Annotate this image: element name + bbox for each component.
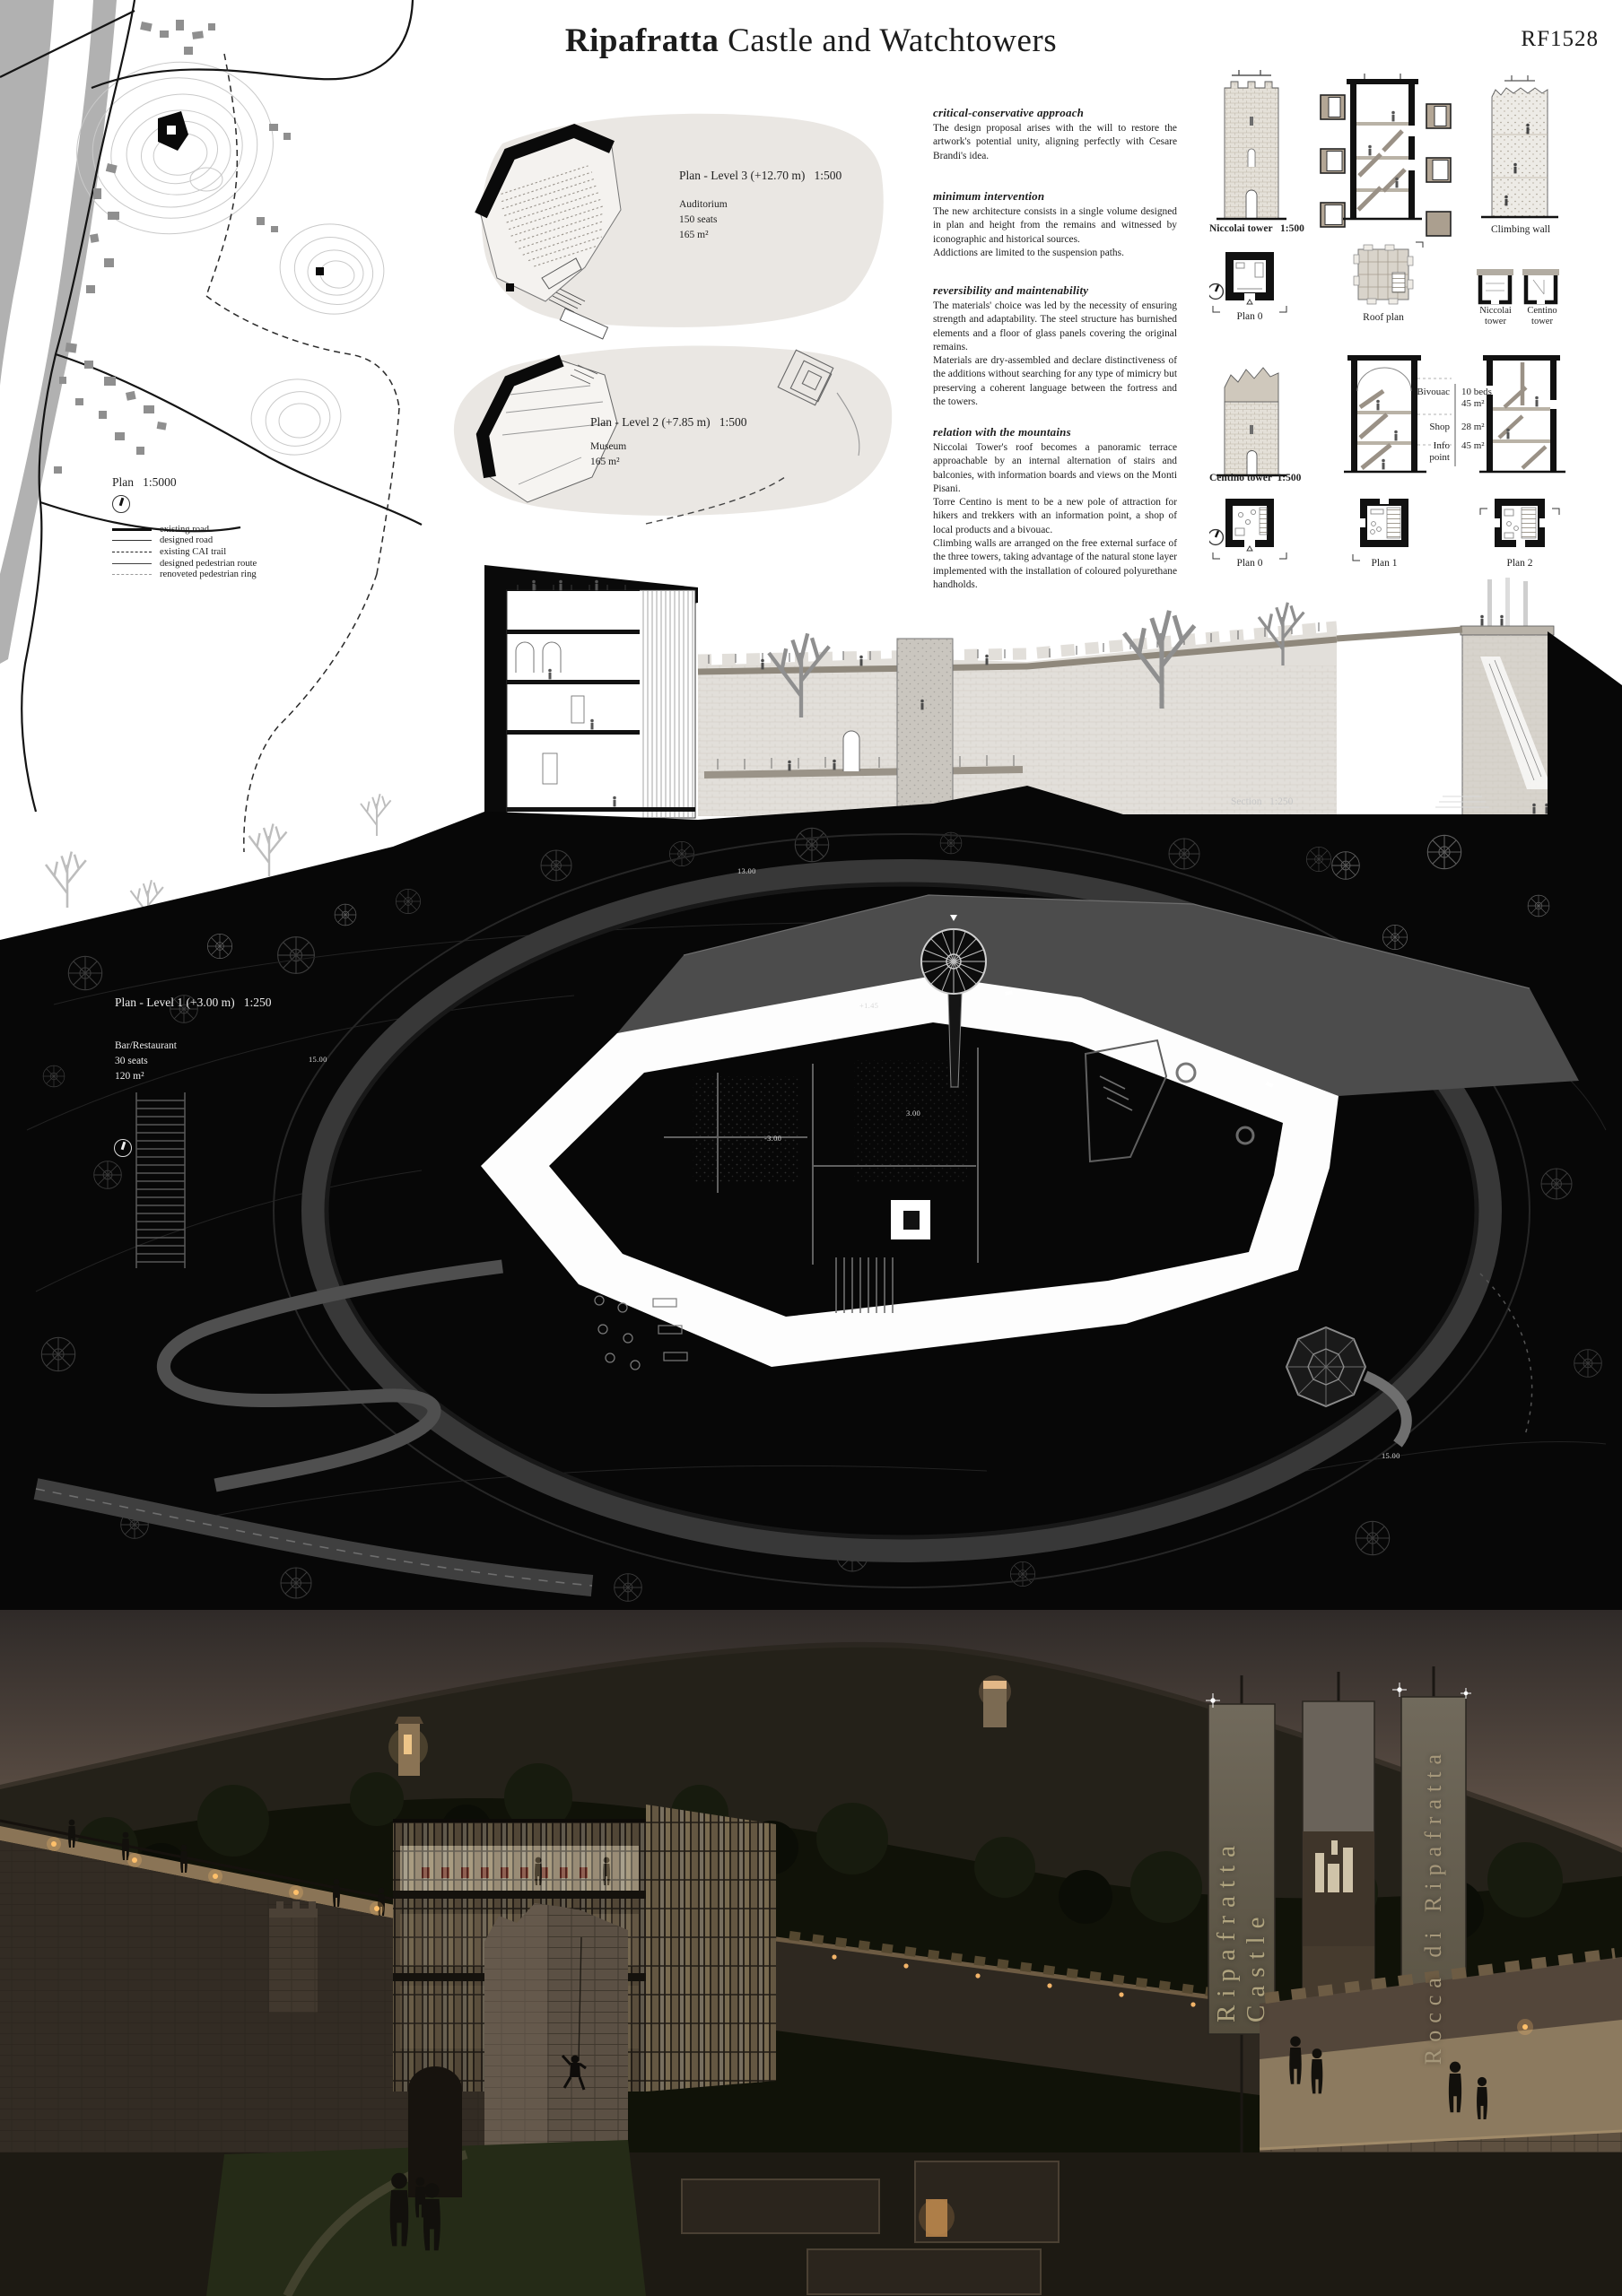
section-scale-label: Section 1:250	[1231, 796, 1293, 807]
existing-road-line-icon	[112, 528, 152, 531]
essay-heading: reversibility and maintenability	[933, 283, 1177, 298]
program-bivouac-label: Bivouac	[1382, 387, 1450, 398]
level2-area: 165 m²	[590, 455, 626, 470]
essay-body: The new architecture consists in a singl…	[933, 205, 1177, 260]
spot-elevation: 13.00	[737, 866, 756, 875]
niccolai-tower-label: Niccolai tower 1:500	[1209, 223, 1304, 234]
designed-road-line-icon	[112, 540, 152, 541]
essay-heading: critical-conservative approach	[933, 106, 1177, 120]
essay-body: The design proposal arises with the will…	[933, 122, 1177, 163]
level3-area: 165 m²	[679, 228, 728, 243]
program-shop-label: Shop	[1382, 422, 1450, 433]
level2-plan-drawing	[431, 339, 933, 529]
essay-section-reversibility: reversibility and maintenability The mat…	[933, 283, 1177, 409]
level1-north-compass-icon	[114, 1139, 132, 1157]
page-title-bold: Ripafratta	[565, 22, 719, 59]
spot-elevation: 15.00	[309, 1055, 327, 1064]
climbing-wall-label: Climbing wall	[1480, 224, 1561, 235]
map-north-compass-icon	[112, 495, 130, 513]
level1-info: Bar/Restaurant 30 seats 120 m²	[115, 1039, 177, 1084]
level3-room: Auditorium	[679, 197, 728, 213]
banner-rocca-di-ripafratta: Rocca di Ripafratta	[1401, 1713, 1466, 2099]
legend-label: existing road	[160, 525, 209, 535]
essay-body: The materials' choice was led by the nec…	[933, 300, 1177, 409]
castle-night-render	[0, 1610, 1622, 2296]
competition-board: { "header": { "title_bold": "Ripafratta"…	[0, 0, 1622, 2296]
banner-ripafratta-castle: Ripafratta Castle	[1208, 1718, 1275, 2022]
program-shop-value: 28 m²	[1461, 422, 1485, 433]
spot-elevation: 15.00	[1382, 1451, 1400, 1460]
level1-title: Plan - Level 1 (+3.00 m) 1:250	[115, 996, 271, 1010]
program-bivouac-value: 10 beds 45 m²	[1461, 387, 1492, 409]
legend-label: designed road	[160, 535, 213, 545]
roof-plan-label: Roof plan	[1356, 312, 1410, 323]
page-title-rest: Castle and Watchtowers	[719, 22, 1057, 59]
spot-elevation: +1.45	[859, 1001, 878, 1010]
essay-heading: relation with the mountains	[933, 425, 1177, 439]
section-and-siteplan-drawing	[0, 554, 1622, 1613]
essay-section-intervention: minimum intervention The new architectur…	[933, 189, 1177, 260]
spot-elevation: -3.00	[764, 1134, 781, 1143]
banner-right-text: Rocca di Ripafratta	[1420, 1747, 1447, 2065]
level3-title: Plan - Level 3 (+12.70 m) 1:500	[679, 169, 842, 183]
essay-section-approach: critical-conservative approach The desig…	[933, 106, 1177, 163]
towers-panel-drawing	[1209, 54, 1622, 605]
centino-small-label: Centino tower	[1514, 306, 1570, 327]
legend-item: designed road	[112, 535, 327, 547]
cai-trail-line-icon	[112, 552, 152, 552]
plan0-top-label: Plan 0	[1223, 311, 1277, 322]
level2-room: Museum	[590, 439, 626, 455]
entry-code: RF1528	[1521, 27, 1599, 52]
level3-info: Auditorium 150 seats 165 m²	[679, 197, 728, 243]
level1-area: 120 m²	[115, 1069, 177, 1084]
level2-info: Museum 165 m²	[590, 439, 626, 470]
level1-seats: 30 seats	[115, 1054, 177, 1069]
level3-seats: 150 seats	[679, 213, 728, 228]
legend-item: existing road	[112, 524, 327, 535]
program-info-value: 45 m²	[1461, 440, 1485, 452]
centino-tower-label: Centino tower 1:500	[1209, 473, 1301, 483]
essay-heading: minimum intervention	[933, 189, 1177, 204]
banner-left-text: Ripafratta Castle	[1212, 1718, 1271, 2022]
level2-title: Plan - Level 2 (+7.85 m) 1:500	[590, 415, 746, 430]
level1-room: Bar/Restaurant	[115, 1039, 177, 1054]
map-scale-label: Plan 1:5000	[112, 475, 177, 490]
program-info-label: Info point	[1382, 440, 1450, 463]
spot-elevation: 3.00	[906, 1109, 920, 1118]
